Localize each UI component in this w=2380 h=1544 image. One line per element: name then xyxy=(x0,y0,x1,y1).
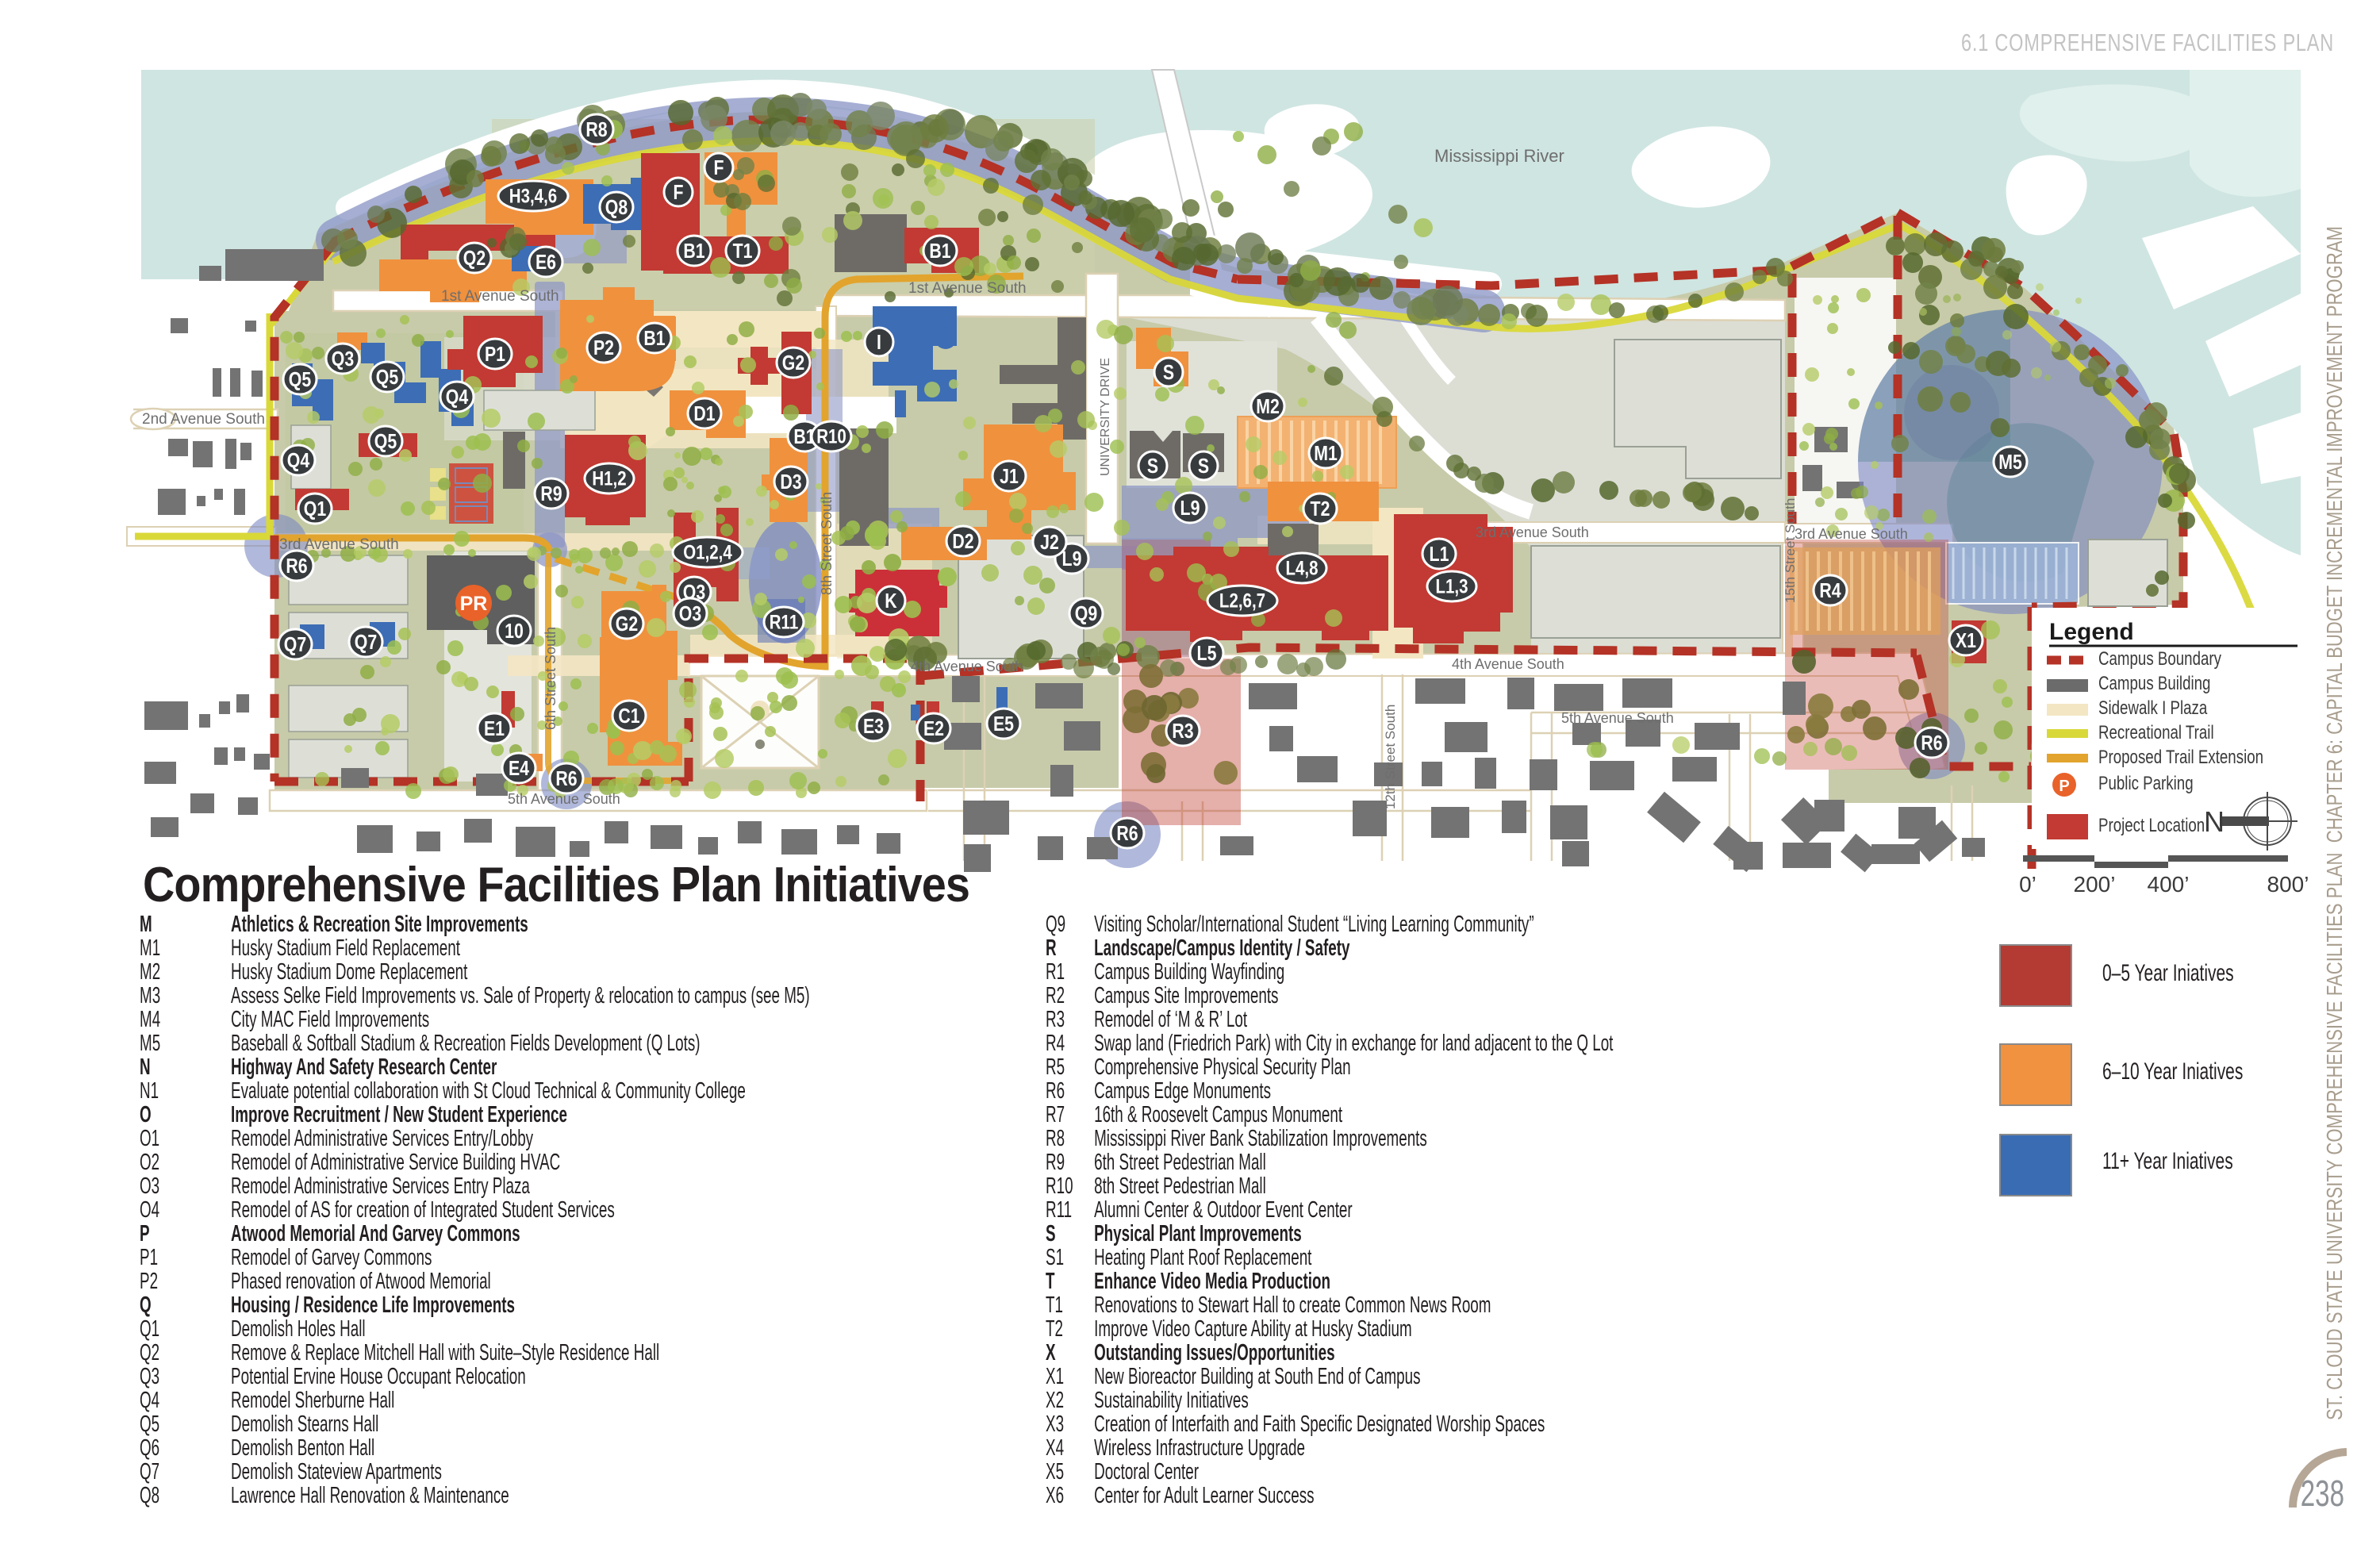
svg-text:Remodel of Garvey Commons: Remodel of Garvey Commons xyxy=(231,1245,432,1270)
svg-text:J1: J1 xyxy=(1000,465,1019,489)
svg-text:8th Street South: 8th Street South xyxy=(819,492,835,595)
svg-text:T1: T1 xyxy=(733,240,753,263)
svg-text:238: 238 xyxy=(2301,1474,2344,1514)
svg-text:Q: Q xyxy=(140,1292,152,1318)
svg-text:X5: X5 xyxy=(1046,1459,1064,1484)
svg-text:PR: PR xyxy=(460,593,488,615)
svg-text:Q8: Q8 xyxy=(605,196,628,220)
svg-text:ST. CLOUD STATE UNIVERSITY COM: ST. CLOUD STATE UNIVERSITY COMPREHENSIVE… xyxy=(2322,226,2347,1420)
svg-text:Campus Edge Monuments: Campus Edge Monuments xyxy=(1094,1078,1271,1104)
svg-text:R10: R10 xyxy=(816,425,846,447)
svg-text:T2: T2 xyxy=(1046,1316,1063,1342)
svg-text:Proposed Trail Extension: Proposed Trail Extension xyxy=(2098,747,2263,768)
svg-text:T2: T2 xyxy=(1311,497,1330,521)
svg-text:15th Street South: 15th Street South xyxy=(1783,498,1798,603)
svg-text:Enhance Video Media Production: Enhance Video Media Production xyxy=(1094,1269,1330,1294)
svg-text:Q7: Q7 xyxy=(284,633,306,657)
svg-text:X4: X4 xyxy=(1046,1435,1064,1461)
svg-text:P1: P1 xyxy=(485,343,505,367)
svg-text:Q5: Q5 xyxy=(374,430,397,454)
svg-text:P: P xyxy=(140,1221,150,1246)
svg-text:H3,4,6: H3,4,6 xyxy=(509,185,557,207)
svg-text:Recreational Trail: Recreational Trail xyxy=(2098,722,2214,743)
svg-text:P2: P2 xyxy=(593,336,614,360)
svg-text:Q6: Q6 xyxy=(140,1435,159,1461)
svg-text:Q5: Q5 xyxy=(289,368,311,392)
svg-text:Alumni Center & Outdoor Event: Alumni Center & Outdoor Event Center xyxy=(1094,1197,1353,1223)
svg-text:R11: R11 xyxy=(770,611,799,633)
svg-text:Assess Selke Field Improvement: Assess Selke Field Improvements vs. Sale… xyxy=(231,983,810,1008)
svg-text:N1: N1 xyxy=(140,1078,159,1104)
svg-text:Improve Video Capture Ability: Improve Video Capture Ability at Husky S… xyxy=(1094,1316,1412,1342)
svg-text:Center for Adult Learner Succe: Center for Adult Learner Success xyxy=(1094,1483,1314,1508)
svg-text:10: 10 xyxy=(505,620,524,643)
svg-text:D1: D1 xyxy=(693,402,715,426)
svg-text:Mississippi River: Mississippi River xyxy=(1434,146,1564,166)
svg-text:Improve Recruitment / New Stud: Improve Recruitment / New Student Experi… xyxy=(231,1102,567,1127)
svg-text:R1: R1 xyxy=(1046,959,1065,985)
svg-text:Swap land (Friedrich Park) wit: Swap land (Friedrich Park) with City in … xyxy=(1094,1031,1613,1056)
svg-text:8th Street Pedestrian Mall: 8th Street Pedestrian Mall xyxy=(1094,1173,1266,1199)
svg-text:E2: E2 xyxy=(923,717,944,741)
svg-text:Baseball & Softball Stadium &: Baseball & Softball Stadium & Recreation… xyxy=(231,1031,700,1056)
svg-text:5th Avenue South: 5th Avenue South xyxy=(1561,710,1674,726)
svg-text:6–10 Year Iniatives: 6–10 Year Iniatives xyxy=(2102,1059,2243,1085)
svg-text:O3: O3 xyxy=(679,602,701,626)
svg-text:200’: 200’ xyxy=(2074,872,2116,897)
svg-text:New Bioreactor Building at Sou: New Bioreactor Building at South End of … xyxy=(1094,1364,1420,1389)
svg-text:S: S xyxy=(1046,1221,1056,1246)
svg-text:R6: R6 xyxy=(1116,822,1138,846)
svg-text:L5: L5 xyxy=(1197,642,1217,666)
svg-text:N: N xyxy=(140,1054,151,1080)
svg-text:S: S xyxy=(1147,455,1158,478)
svg-text:G2: G2 xyxy=(782,351,804,375)
svg-text:Atwood Memorial And Garvey Com: Atwood Memorial And Garvey Commons xyxy=(231,1221,520,1246)
svg-text:H1,2: H1,2 xyxy=(592,467,626,490)
svg-text:Q2: Q2 xyxy=(140,1340,159,1365)
svg-text:M5: M5 xyxy=(1998,451,2022,474)
svg-text:L1: L1 xyxy=(1430,543,1449,567)
svg-text:12th Street South: 12th Street South xyxy=(1383,705,1398,809)
svg-text:S1: S1 xyxy=(1046,1245,1064,1270)
svg-text:0–5 Year Iniatives: 0–5 Year Iniatives xyxy=(2102,961,2234,986)
svg-text:Remodel Administrative Service: Remodel Administrative Services Entry/Lo… xyxy=(231,1126,534,1151)
svg-text:R8: R8 xyxy=(1046,1126,1065,1151)
svg-text:2nd Avenue South: 2nd Avenue South xyxy=(142,411,265,428)
svg-text:P: P xyxy=(2059,778,2069,795)
svg-text:B1: B1 xyxy=(683,240,704,263)
svg-text:D3: D3 xyxy=(780,470,801,494)
svg-text:Physical Plant Improvements: Physical Plant Improvements xyxy=(1094,1221,1302,1246)
svg-text:M1: M1 xyxy=(1314,442,1338,466)
svg-text:Q7: Q7 xyxy=(140,1459,159,1484)
svg-text:M3: M3 xyxy=(140,983,160,1008)
svg-text:3rd Avenue South: 3rd Avenue South xyxy=(1476,524,1589,540)
svg-text:T: T xyxy=(1046,1269,1055,1294)
svg-text:Q5: Q5 xyxy=(376,366,398,390)
svg-text:City MAC Field Improvements: City MAC Field Improvements xyxy=(231,1007,429,1032)
svg-text:Demolish Holes Hall: Demolish Holes Hall xyxy=(231,1316,366,1342)
svg-text:B1: B1 xyxy=(643,327,665,351)
svg-text:Q9: Q9 xyxy=(1075,602,1097,626)
svg-text:M2: M2 xyxy=(140,959,160,985)
svg-text:5th Avenue South: 5th Avenue South xyxy=(508,791,620,807)
svg-text:Potential Ervine House Occupan: Potential Ervine House Occupant Relocati… xyxy=(231,1364,526,1389)
svg-text:E5: E5 xyxy=(993,712,1014,736)
svg-text:Remodel of ‘M & R’ Lot: Remodel of ‘M & R’ Lot xyxy=(1094,1007,1247,1032)
svg-text:O1: O1 xyxy=(140,1126,159,1151)
svg-text:L1,3: L1,3 xyxy=(1435,575,1468,597)
svg-text:Demolish Benton Hall: Demolish Benton Hall xyxy=(231,1435,374,1461)
svg-text:4th Avenue South: 4th Avenue South xyxy=(1452,656,1564,672)
svg-text:R10: R10 xyxy=(1046,1173,1073,1199)
svg-text:P1: P1 xyxy=(140,1245,158,1270)
svg-text:R6: R6 xyxy=(555,767,577,791)
svg-text:1st Avenue South: 1st Avenue South xyxy=(441,288,559,305)
svg-text:F: F xyxy=(713,156,724,180)
svg-text:R9: R9 xyxy=(1046,1150,1065,1175)
svg-text:K: K xyxy=(885,590,896,613)
svg-text:3rd Avenue South: 3rd Avenue South xyxy=(279,536,399,553)
svg-text:Demolish Stateview Apartments: Demolish Stateview Apartments xyxy=(231,1459,442,1484)
svg-text:X2: X2 xyxy=(1046,1388,1064,1413)
svg-text:Project Location: Project Location xyxy=(2098,815,2205,836)
svg-text:Wireless Infrastructure Upgrad: Wireless Infrastructure Upgrade xyxy=(1094,1435,1305,1461)
svg-text:Q3: Q3 xyxy=(332,348,354,371)
svg-text:I: I xyxy=(877,331,881,355)
svg-text:Phased renovation of Atwood Me: Phased renovation of Atwood Memorial xyxy=(231,1269,491,1294)
svg-text:Q4: Q4 xyxy=(140,1388,159,1413)
svg-text:E1: E1 xyxy=(484,717,505,741)
svg-text:Remodel Administrative Service: Remodel Administrative Services Entry Pl… xyxy=(231,1173,530,1199)
svg-text:4th Avenue South: 4th Avenue South xyxy=(911,659,1023,674)
svg-text:R4: R4 xyxy=(1819,579,1841,603)
svg-text:Remodel of AS for creation of: Remodel of AS for creation of Integrated… xyxy=(231,1197,615,1223)
svg-text:Renovations to Stewart Hall to: Renovations to Stewart Hall to create Co… xyxy=(1094,1292,1491,1318)
svg-text:Q5: Q5 xyxy=(140,1411,159,1437)
svg-text:Visiting Scholar/International: Visiting Scholar/International Student “… xyxy=(1094,912,1534,937)
svg-text:6th Street South: 6th Street South xyxy=(543,627,559,730)
svg-text:L9: L9 xyxy=(1062,547,1082,571)
svg-text:Creation of Interfaith and Fai: Creation of Interfaith and Faith Specifi… xyxy=(1094,1411,1545,1437)
svg-text:1st Avenue South: 1st Avenue South xyxy=(908,280,1027,297)
svg-text:S: S xyxy=(1198,455,1209,478)
svg-text:Husky Stadium Dome Replacement: Husky Stadium Dome Replacement xyxy=(231,959,468,985)
svg-text:Housing / Residence Life Impro: Housing / Residence Life Improvements xyxy=(231,1292,515,1318)
svg-text:800’: 800’ xyxy=(2267,872,2309,897)
svg-text:Q3: Q3 xyxy=(140,1364,159,1389)
svg-text:Q4: Q4 xyxy=(446,386,469,409)
svg-text:R8: R8 xyxy=(585,118,607,142)
svg-text:16th & Roosevelt Campus Monume: 16th & Roosevelt Campus Monument xyxy=(1094,1102,1342,1127)
svg-text:X6: X6 xyxy=(1046,1483,1064,1508)
svg-text:R2: R2 xyxy=(1046,983,1065,1008)
svg-text:S: S xyxy=(1163,361,1174,385)
svg-text:11+ Year Iniatives: 11+ Year Iniatives xyxy=(2102,1149,2233,1174)
svg-text:Sustainability Initiatives: Sustainability Initiatives xyxy=(1094,1388,1249,1413)
svg-text:R6: R6 xyxy=(1046,1078,1065,1104)
svg-text:3rd Avenue South: 3rd Avenue South xyxy=(1795,526,1908,542)
svg-text:Demolish Stearns Hall: Demolish Stearns Hall xyxy=(231,1411,378,1437)
svg-text:X1: X1 xyxy=(1956,629,1976,653)
svg-text:O2: O2 xyxy=(140,1150,159,1175)
svg-text:G2: G2 xyxy=(616,613,638,636)
svg-text:T1: T1 xyxy=(1046,1292,1063,1318)
svg-text:Campus Boundary: Campus Boundary xyxy=(2098,648,2221,670)
svg-text:R6: R6 xyxy=(1921,732,1942,755)
svg-text:0’: 0’ xyxy=(2019,872,2036,897)
svg-text:E6: E6 xyxy=(535,251,556,275)
svg-text:Remodel Sherburne Hall: Remodel Sherburne Hall xyxy=(231,1388,394,1413)
svg-text:Athletics & Recreation Site Im: Athletics & Recreation Site Improvements xyxy=(231,912,528,937)
svg-text:Campus Building: Campus Building xyxy=(2098,673,2210,694)
svg-text:M4: M4 xyxy=(140,1007,160,1032)
svg-text:Evaluate potential collaborati: Evaluate potential collaboration with St… xyxy=(231,1078,746,1104)
svg-text:O4: O4 xyxy=(140,1197,159,1223)
svg-text:6.1 COMPREHENSIVE FACILITIES P: 6.1 COMPREHENSIVE FACILITIES PLAN xyxy=(1961,29,2334,56)
svg-text:R3: R3 xyxy=(1172,720,1193,743)
svg-text:L4,8: L4,8 xyxy=(1285,557,1318,579)
svg-text:Lawrence Hall Renovation & Mai: Lawrence Hall Renovation & Maintenance xyxy=(231,1483,509,1508)
svg-text:R9: R9 xyxy=(540,482,562,506)
svg-text:Heating Plant Roof Replacement: Heating Plant Roof Replacement xyxy=(1094,1245,1311,1270)
svg-text:M2: M2 xyxy=(1256,395,1280,419)
svg-text:M: M xyxy=(140,912,152,937)
svg-text:B1: B1 xyxy=(929,240,950,263)
svg-text:R7: R7 xyxy=(1046,1102,1065,1127)
svg-text:O: O xyxy=(140,1102,152,1127)
svg-text:Remodel of Administrative Serv: Remodel of Administrative Service Buildi… xyxy=(231,1150,560,1175)
svg-text:R3: R3 xyxy=(1046,1007,1065,1032)
svg-text:Campus Site Improvements: Campus Site Improvements xyxy=(1094,983,1278,1008)
svg-text:Q2: Q2 xyxy=(463,247,486,271)
svg-text:Q7: Q7 xyxy=(355,631,377,655)
svg-text:C1: C1 xyxy=(618,705,639,728)
svg-text:Campus Building Wayfinding: Campus Building Wayfinding xyxy=(1094,959,1284,985)
svg-text:Landscape/Campus Identity / Sa: Landscape/Campus Identity / Safety xyxy=(1094,935,1350,961)
svg-text:Highway And Safety Research Ce: Highway And Safety Research Center xyxy=(231,1054,497,1080)
svg-text:X3: X3 xyxy=(1046,1411,1064,1437)
svg-text:O3: O3 xyxy=(140,1173,159,1199)
svg-text:Sidewalk I Plaza: Sidewalk I Plaza xyxy=(2098,697,2207,719)
svg-text:Q1: Q1 xyxy=(304,497,326,521)
svg-text:M5: M5 xyxy=(140,1031,160,1056)
svg-text:Q8: Q8 xyxy=(140,1483,159,1508)
svg-text:Comprehensive Physical Securit: Comprehensive Physical Security Plan xyxy=(1094,1054,1350,1080)
svg-text:R5: R5 xyxy=(1046,1054,1065,1080)
svg-text:Q4: Q4 xyxy=(287,449,310,473)
svg-text:R: R xyxy=(1046,935,1057,961)
svg-text:Outstanding Issues/Opportuniti: Outstanding Issues/Opportunities xyxy=(1094,1340,1334,1365)
svg-text:L2,6,7: L2,6,7 xyxy=(1219,590,1265,612)
svg-text:Husky Stadium Field Replacemen: Husky Stadium Field Replacement xyxy=(231,935,460,961)
svg-text:P2: P2 xyxy=(140,1269,158,1294)
svg-text:J2: J2 xyxy=(1040,531,1059,555)
svg-text:E4: E4 xyxy=(509,757,530,781)
svg-text:Public Parking: Public Parking xyxy=(2098,773,2194,794)
svg-text:O1,2,4: O1,2,4 xyxy=(683,541,732,563)
svg-text:D2: D2 xyxy=(952,530,973,554)
svg-text:6th Street Pedestrian Mall: 6th Street Pedestrian Mall xyxy=(1094,1150,1266,1175)
svg-text:UNIVERSITY DRIVE: UNIVERSITY DRIVE xyxy=(1099,358,1112,476)
svg-text:F: F xyxy=(673,181,683,205)
svg-text:400’: 400’ xyxy=(2148,872,2190,897)
svg-text:R11: R11 xyxy=(1046,1197,1072,1223)
svg-text:Legend: Legend xyxy=(2049,619,2134,645)
svg-text:Mississippi River Bank Stabili: Mississippi River Bank Stabilization Imp… xyxy=(1094,1126,1427,1151)
svg-text:M1: M1 xyxy=(140,935,160,961)
svg-text:L9: L9 xyxy=(1180,497,1200,520)
svg-text:R4: R4 xyxy=(1046,1031,1065,1056)
svg-text:N: N xyxy=(2204,805,2225,838)
svg-text:X1: X1 xyxy=(1046,1364,1064,1389)
svg-text:X: X xyxy=(1046,1340,1056,1365)
svg-text:Remove & Replace Mitchell Hall: Remove & Replace Mitchell Hall with Suit… xyxy=(231,1340,659,1365)
svg-text:Q9: Q9 xyxy=(1046,912,1065,937)
svg-text:Comprehensive Facilities Plan: Comprehensive Facilities Plan Initiative… xyxy=(143,858,969,912)
svg-text:Doctoral Center: Doctoral Center xyxy=(1094,1459,1199,1484)
svg-text:R6: R6 xyxy=(286,555,307,578)
svg-text:E3: E3 xyxy=(863,715,884,739)
svg-text:Q1: Q1 xyxy=(140,1316,159,1342)
